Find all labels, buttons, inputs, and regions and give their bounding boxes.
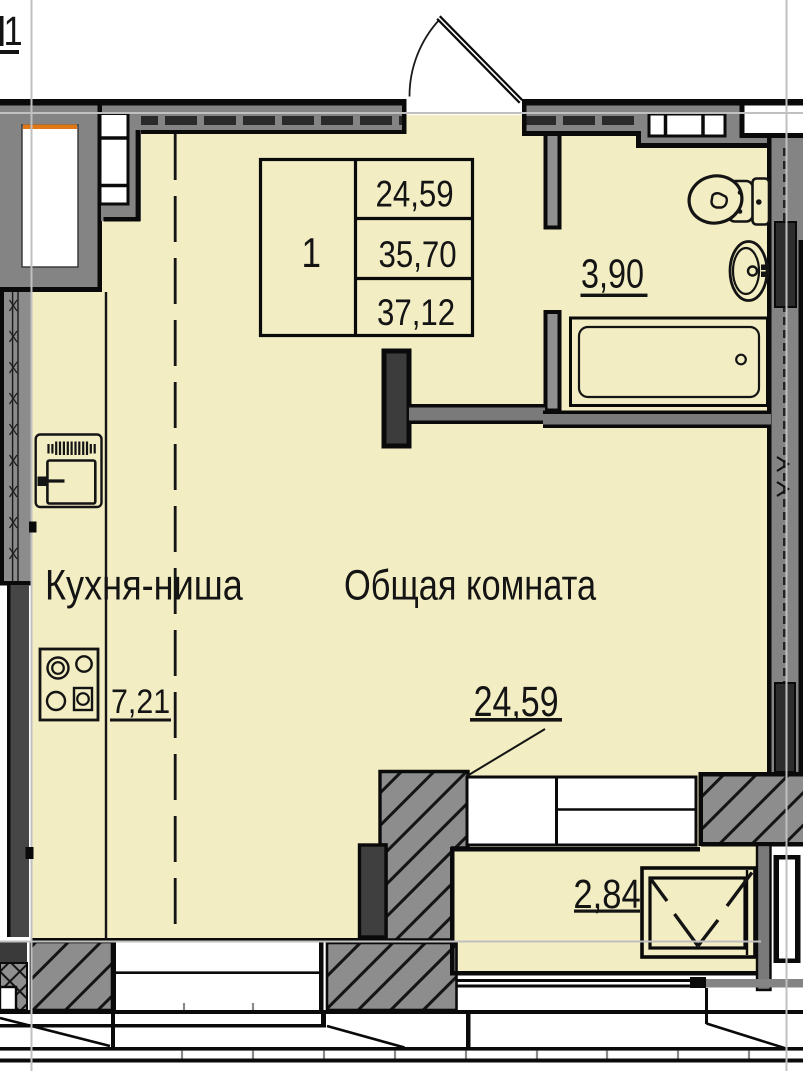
svg-text:1: 1 [4,9,23,54]
svg-text:1: 1 [302,230,321,277]
svg-text:37,12: 37,12 [377,293,455,334]
svg-text:Кухня-ниша: Кухня-ниша [45,562,244,610]
svg-text:Общая комната: Общая комната [344,562,596,609]
svg-text:7,21: 7,21 [111,683,170,721]
svg-text:24,59: 24,59 [376,174,454,215]
svg-text:3,90: 3,90 [581,251,644,296]
svg-text:35,70: 35,70 [379,235,457,276]
